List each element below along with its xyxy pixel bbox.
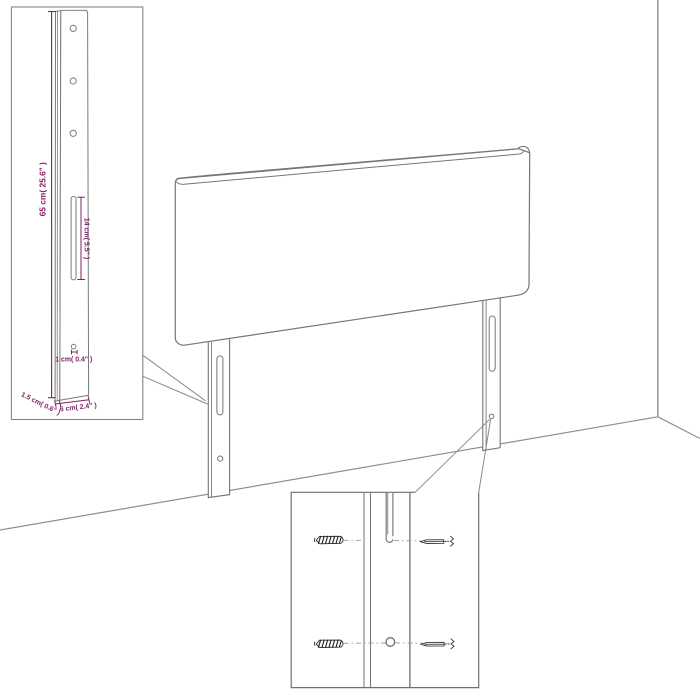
svg-text:65 cm( 25.6" ): 65 cm( 25.6" ) xyxy=(38,162,48,216)
svg-text:1 cm( 0.4" ): 1 cm( 0.4" ) xyxy=(55,357,92,364)
svg-text:14 cm( 5.5" ): 14 cm( 5.5" ) xyxy=(82,218,89,259)
